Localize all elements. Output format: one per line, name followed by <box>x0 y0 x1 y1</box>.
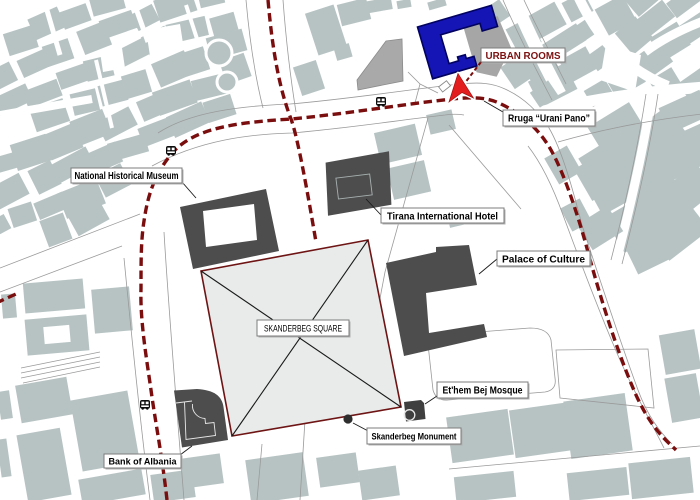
svg-text:Palace of Culture: Palace of Culture <box>502 253 585 265</box>
svg-text:National Historical Museum: National Historical Museum <box>75 171 179 182</box>
svg-text:Rruga “Urani Pano”: Rruga “Urani Pano” <box>508 114 590 125</box>
svg-text:Bank of Albania: Bank of Albania <box>109 456 178 467</box>
svg-text:URBAN ROOMS: URBAN ROOMS <box>486 50 561 62</box>
svg-text:SKANDERBEG SQUARE: SKANDERBEG SQUARE <box>264 323 342 334</box>
svg-text:Et'hem Bej Mosque: Et'hem Bej Mosque <box>443 386 523 397</box>
svg-text:Tirana International Hotel: Tirana International Hotel <box>387 210 498 222</box>
svg-text:Skanderbeg Monument: Skanderbeg Monument <box>372 431 458 442</box>
